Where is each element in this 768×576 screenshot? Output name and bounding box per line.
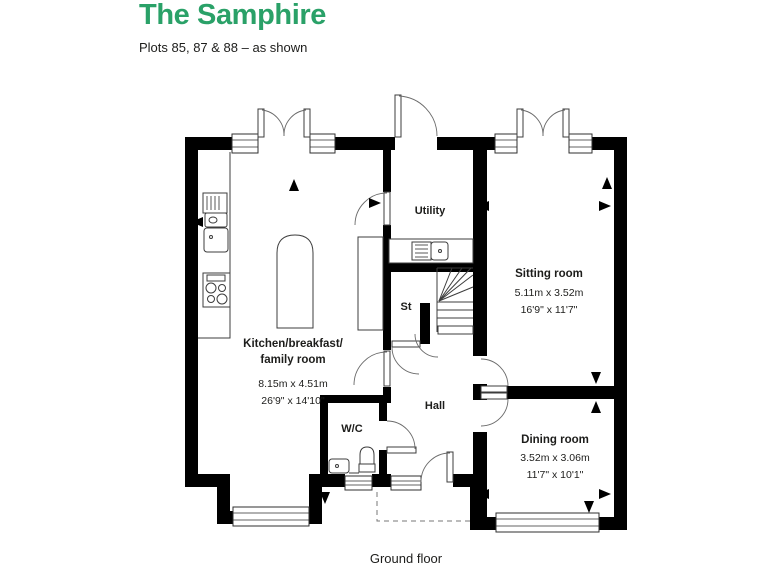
svg-text:8.15m x 4.51m: 8.15m x 4.51m	[258, 378, 328, 390]
kitchen-window-right	[310, 134, 335, 153]
hall-sitting-door	[481, 359, 508, 392]
svg-text:16'9" x 11'7": 16'9" x 11'7"	[521, 304, 578, 316]
wc-window	[345, 476, 372, 490]
toilet	[359, 447, 375, 472]
hall-window	[391, 476, 421, 490]
utility-sink	[389, 239, 473, 263]
sitting-window-left	[495, 134, 517, 153]
utility-external-door	[395, 95, 437, 137]
svg-text:family room: family room	[260, 354, 325, 366]
hall-label: Hall	[425, 400, 445, 412]
breakfast-counter	[358, 237, 383, 330]
wc-label: W/C	[341, 423, 362, 435]
kitchen-french-doors	[258, 109, 310, 137]
wc-fixtures	[329, 447, 375, 473]
sitting-room-label: Sitting room 5.11m x 3.52m 16'9" x 11'7"	[515, 268, 584, 316]
sitting-french-doors	[517, 109, 569, 137]
svg-text:Kitchen/breakfast/: Kitchen/breakfast/	[243, 338, 344, 350]
kitchen-hall-door	[354, 351, 390, 386]
floor-caption: Ground floor	[185, 551, 627, 566]
hob	[203, 273, 230, 307]
stairs	[437, 268, 473, 332]
kitchen-island	[277, 235, 313, 328]
svg-text:5.11m x 3.52m: 5.11m x 3.52m	[515, 287, 584, 299]
kitchen-fixtures	[198, 152, 473, 338]
basin	[329, 459, 359, 473]
kitchen-window-left	[232, 134, 258, 153]
svg-text:Dining room: Dining room	[521, 434, 589, 446]
svg-text:26'9" x 14'10": 26'9" x 14'10"	[261, 395, 325, 407]
dining-window	[496, 513, 599, 532]
front-door	[421, 452, 453, 482]
store-label: St	[401, 301, 412, 313]
svg-text:Sitting room: Sitting room	[515, 268, 583, 280]
kitchen-bay-window	[233, 507, 309, 526]
wc-door	[387, 421, 416, 453]
store-door	[392, 341, 420, 374]
kitchen-utility-door	[355, 192, 390, 225]
svg-text:3.52m x 3.06m: 3.52m x 3.06m	[520, 452, 590, 464]
kitchen-sink	[203, 193, 228, 252]
hall-dining-door	[481, 393, 508, 426]
utility-label: Utility	[415, 205, 446, 217]
porch-canopy-outline	[377, 492, 470, 521]
floorplan-page: The Samphire Plots 85, 87 & 88 – as show…	[0, 0, 768, 576]
dining-room-label: Dining room 3.52m x 3.06m 11'7" x 10'1"	[520, 434, 590, 481]
svg-text:11'7" x 10'1": 11'7" x 10'1"	[527, 469, 584, 481]
sitting-window-right	[569, 134, 592, 153]
floorplan-drawing: Kitchen/breakfast/ family room 8.15m x 4…	[0, 0, 768, 576]
